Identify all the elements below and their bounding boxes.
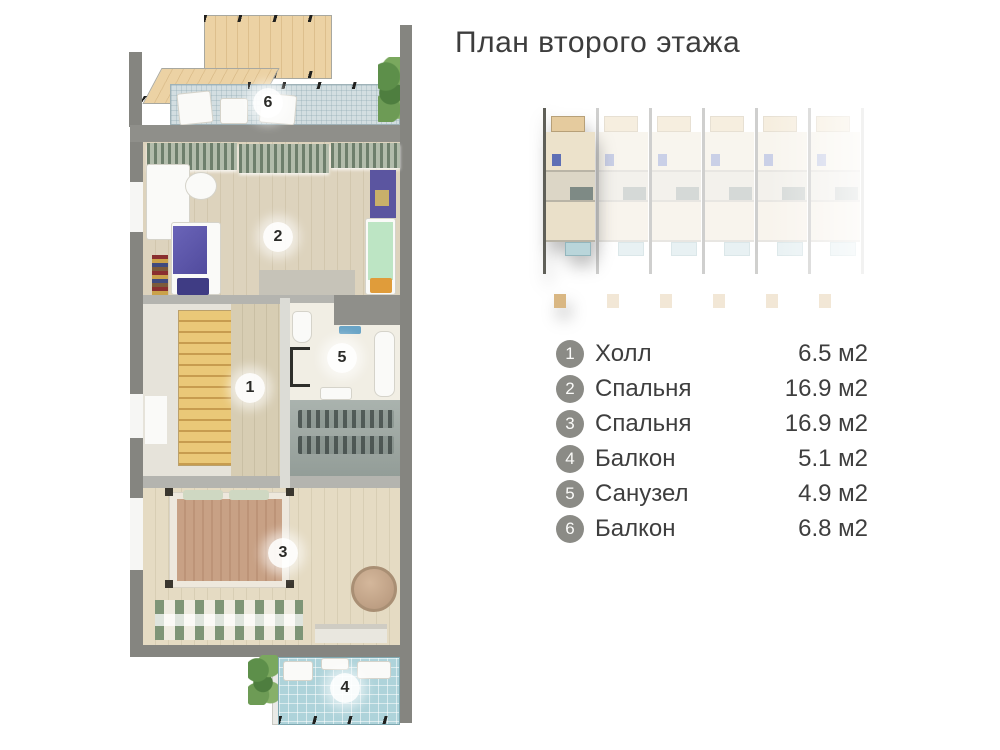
- legend-row: 5 Санузел 4.9 м2: [556, 476, 868, 511]
- room-name: Санузел: [595, 480, 689, 508]
- curtain: [331, 143, 400, 168]
- plant: [248, 655, 278, 705]
- window: [130, 182, 143, 232]
- bathtub: [374, 331, 395, 397]
- wall-bath-notch: [334, 295, 400, 325]
- wall-right: [400, 25, 412, 723]
- bed-post: [286, 488, 294, 496]
- balcony-chair: [357, 661, 391, 679]
- room-number-badge: 2: [556, 375, 584, 403]
- legend-row: 6 Балкон 6.8 м2: [556, 511, 868, 546]
- wall-balcony-divider: [130, 125, 400, 142]
- legend-row: 1 Холл 6.5 м2: [556, 336, 868, 371]
- room-name: Балкон: [595, 515, 675, 543]
- room-number-badge: 6: [556, 515, 584, 543]
- overview-unit: [808, 116, 861, 266]
- wall-left-upper: [129, 52, 142, 127]
- wardrobe-purple: [370, 170, 396, 218]
- bed-blanket-tan: [177, 499, 282, 581]
- room-number-badge: 3: [556, 410, 584, 438]
- hanging-clothes: [298, 436, 394, 454]
- overview-unit: [755, 116, 808, 266]
- bed-post: [165, 488, 173, 496]
- room-area: 16.9 м2: [785, 375, 868, 403]
- room-legend: 1 Холл 6.5 м2 2 Спальня 16.9 м2 3 Спальн…: [556, 336, 868, 546]
- toilet: [292, 311, 312, 343]
- plan-badge-5: 5: [327, 343, 357, 373]
- plan-badge-4: 4: [330, 673, 360, 703]
- plan-badge-3: 3: [268, 538, 298, 568]
- wardrobe-closet: [290, 400, 400, 476]
- sofa: [259, 270, 355, 295]
- wall-hall-bath: [280, 298, 290, 488]
- overview-unit: [702, 116, 755, 266]
- overview-end-wall: [861, 116, 914, 266]
- window-light: [145, 396, 167, 444]
- legend-row: 4 Балкон 5.1 м2: [556, 441, 868, 476]
- plan-badge-1: 1: [235, 373, 265, 403]
- staircase: [178, 310, 236, 466]
- room-number-badge: 1: [556, 340, 584, 368]
- room-area: 6.8 м2: [798, 515, 868, 543]
- building-overview-thumbnail: [543, 108, 877, 282]
- legend-row: 2 Спальня 16.9 м2: [556, 371, 868, 406]
- chair: [185, 172, 217, 200]
- room-number-badge: 4: [556, 445, 584, 473]
- desk: [315, 624, 387, 643]
- balcony-chair: [283, 661, 313, 681]
- door-swing: [290, 347, 310, 387]
- room-name: Спальня: [595, 410, 691, 438]
- legend-row: 3 Спальня 16.9 м2: [556, 406, 868, 441]
- room3-bedroom: [143, 488, 400, 645]
- window: [130, 498, 143, 570]
- rug-band: [155, 614, 303, 626]
- bed-post: [165, 580, 173, 588]
- bookshelf: [152, 255, 168, 295]
- room-name: Спальня: [595, 375, 691, 403]
- overview-unit: [649, 116, 702, 266]
- pillow-orange: [370, 278, 392, 293]
- wall-hall-room3: [143, 476, 400, 488]
- hanging-clothes: [298, 410, 394, 428]
- balcony6-lounger: [220, 98, 248, 124]
- pillow: [229, 490, 269, 500]
- pillow: [183, 490, 223, 500]
- balcony6-deck-ticks-top: [204, 15, 332, 22]
- room-name: Балкон: [595, 445, 675, 473]
- page: 6 2 1 5 3 4 План второго этажа 1 Холл 6.…: [0, 0, 1000, 750]
- overview-unit: [596, 116, 649, 266]
- room2-bedroom: [143, 142, 400, 295]
- room-area: 16.9 м2: [785, 410, 868, 438]
- plan-badge-6: 6: [253, 88, 283, 118]
- floor-plan: 6 2 1 5 3 4: [128, 12, 412, 734]
- overview-unit: [543, 116, 596, 266]
- balcony-table: [321, 658, 349, 670]
- sink: [320, 387, 352, 400]
- window: [130, 394, 143, 438]
- pillow-dark: [177, 278, 209, 295]
- room-area: 5.1 м2: [798, 445, 868, 473]
- room-name: Холл: [595, 340, 652, 368]
- balcony4-railing-ticks: [279, 716, 401, 724]
- page-title: План второго этажа: [455, 26, 740, 60]
- room-number-badge: 5: [556, 480, 584, 508]
- wardrobe-contents: [375, 190, 389, 206]
- plan-badge-2: 2: [263, 222, 293, 252]
- room-area: 4.9 м2: [798, 480, 868, 508]
- room-area: 6.5 м2: [798, 340, 868, 368]
- pouf: [351, 566, 397, 612]
- curtain: [239, 144, 329, 173]
- shelf-blue: [339, 326, 361, 334]
- bed-blanket-purple: [173, 226, 207, 274]
- balcony6-lounger: [176, 90, 213, 125]
- bed-blanket-green: [368, 222, 393, 280]
- bed-post: [286, 580, 294, 588]
